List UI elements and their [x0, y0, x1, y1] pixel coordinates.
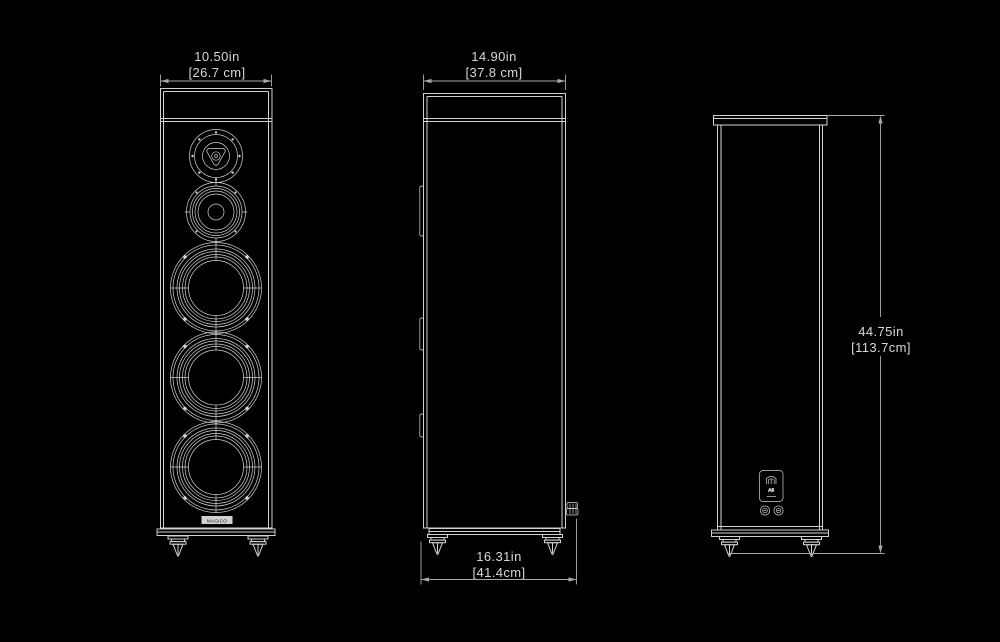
front-spike-left	[168, 536, 188, 556]
rear-view: A5 44.75in [113.7cm]	[712, 116, 911, 557]
front-badge-text: MAGICO	[207, 518, 227, 523]
binding-post-left	[760, 506, 769, 515]
side-spike-rear	[543, 535, 563, 555]
front-width-metric: [26.7 cm]	[188, 65, 245, 80]
height-dimension: 44.75in [113.7cm]	[727, 116, 911, 554]
front-width-inches: 10.50in	[194, 49, 239, 64]
side-depth-top-metric: [37.8 cm]	[465, 65, 522, 80]
side-plinth	[429, 529, 560, 535]
speaker-dimension-drawing: MAGICO 10.50in [26.7 cm]	[0, 0, 1000, 642]
binding-post-right	[774, 506, 783, 515]
tweeter	[190, 130, 243, 183]
height-metric: [113.7cm]	[851, 340, 911, 355]
magico-logo-icon	[767, 477, 777, 485]
side-depth-bottom-inches: 16.31in	[476, 549, 521, 564]
woofer-middle	[171, 332, 262, 423]
front-badge: MAGICO	[202, 516, 233, 524]
front-width-dimension: 10.50in [26.7 cm]	[161, 49, 272, 87]
side-depth-top-inches: 14.90in	[471, 49, 516, 64]
front-spike-right	[248, 536, 268, 556]
side-baffle-profile	[420, 186, 424, 437]
side-depth-top-dimension: 14.90in [37.8 cm]	[424, 49, 566, 90]
rear-terminal-plate: A5	[760, 471, 784, 502]
side-cabinet-outline	[424, 94, 566, 529]
front-view: MAGICO 10.50in [26.7 cm]	[157, 49, 275, 556]
side-spike-front	[428, 535, 448, 555]
woofer-bottom	[171, 422, 262, 513]
side-binding-post-knob	[567, 503, 579, 516]
side-view: 14.90in [37.8 cm] 16.31in [41.4cm]	[420, 49, 578, 585]
drawing-svg: MAGICO 10.50in [26.7 cm]	[0, 0, 1000, 642]
midrange-driver	[185, 181, 248, 244]
woofer-top	[171, 243, 262, 334]
rear-plate-model-text: A5	[768, 488, 774, 493]
rear-cabinet-outline	[714, 116, 828, 531]
side-depth-bottom-metric: [41.4cm]	[472, 565, 525, 580]
tweeter-waveguide	[207, 149, 225, 166]
front-plinth	[157, 529, 275, 536]
height-inches: 44.75in	[858, 324, 903, 339]
rear-plinth	[712, 530, 829, 537]
